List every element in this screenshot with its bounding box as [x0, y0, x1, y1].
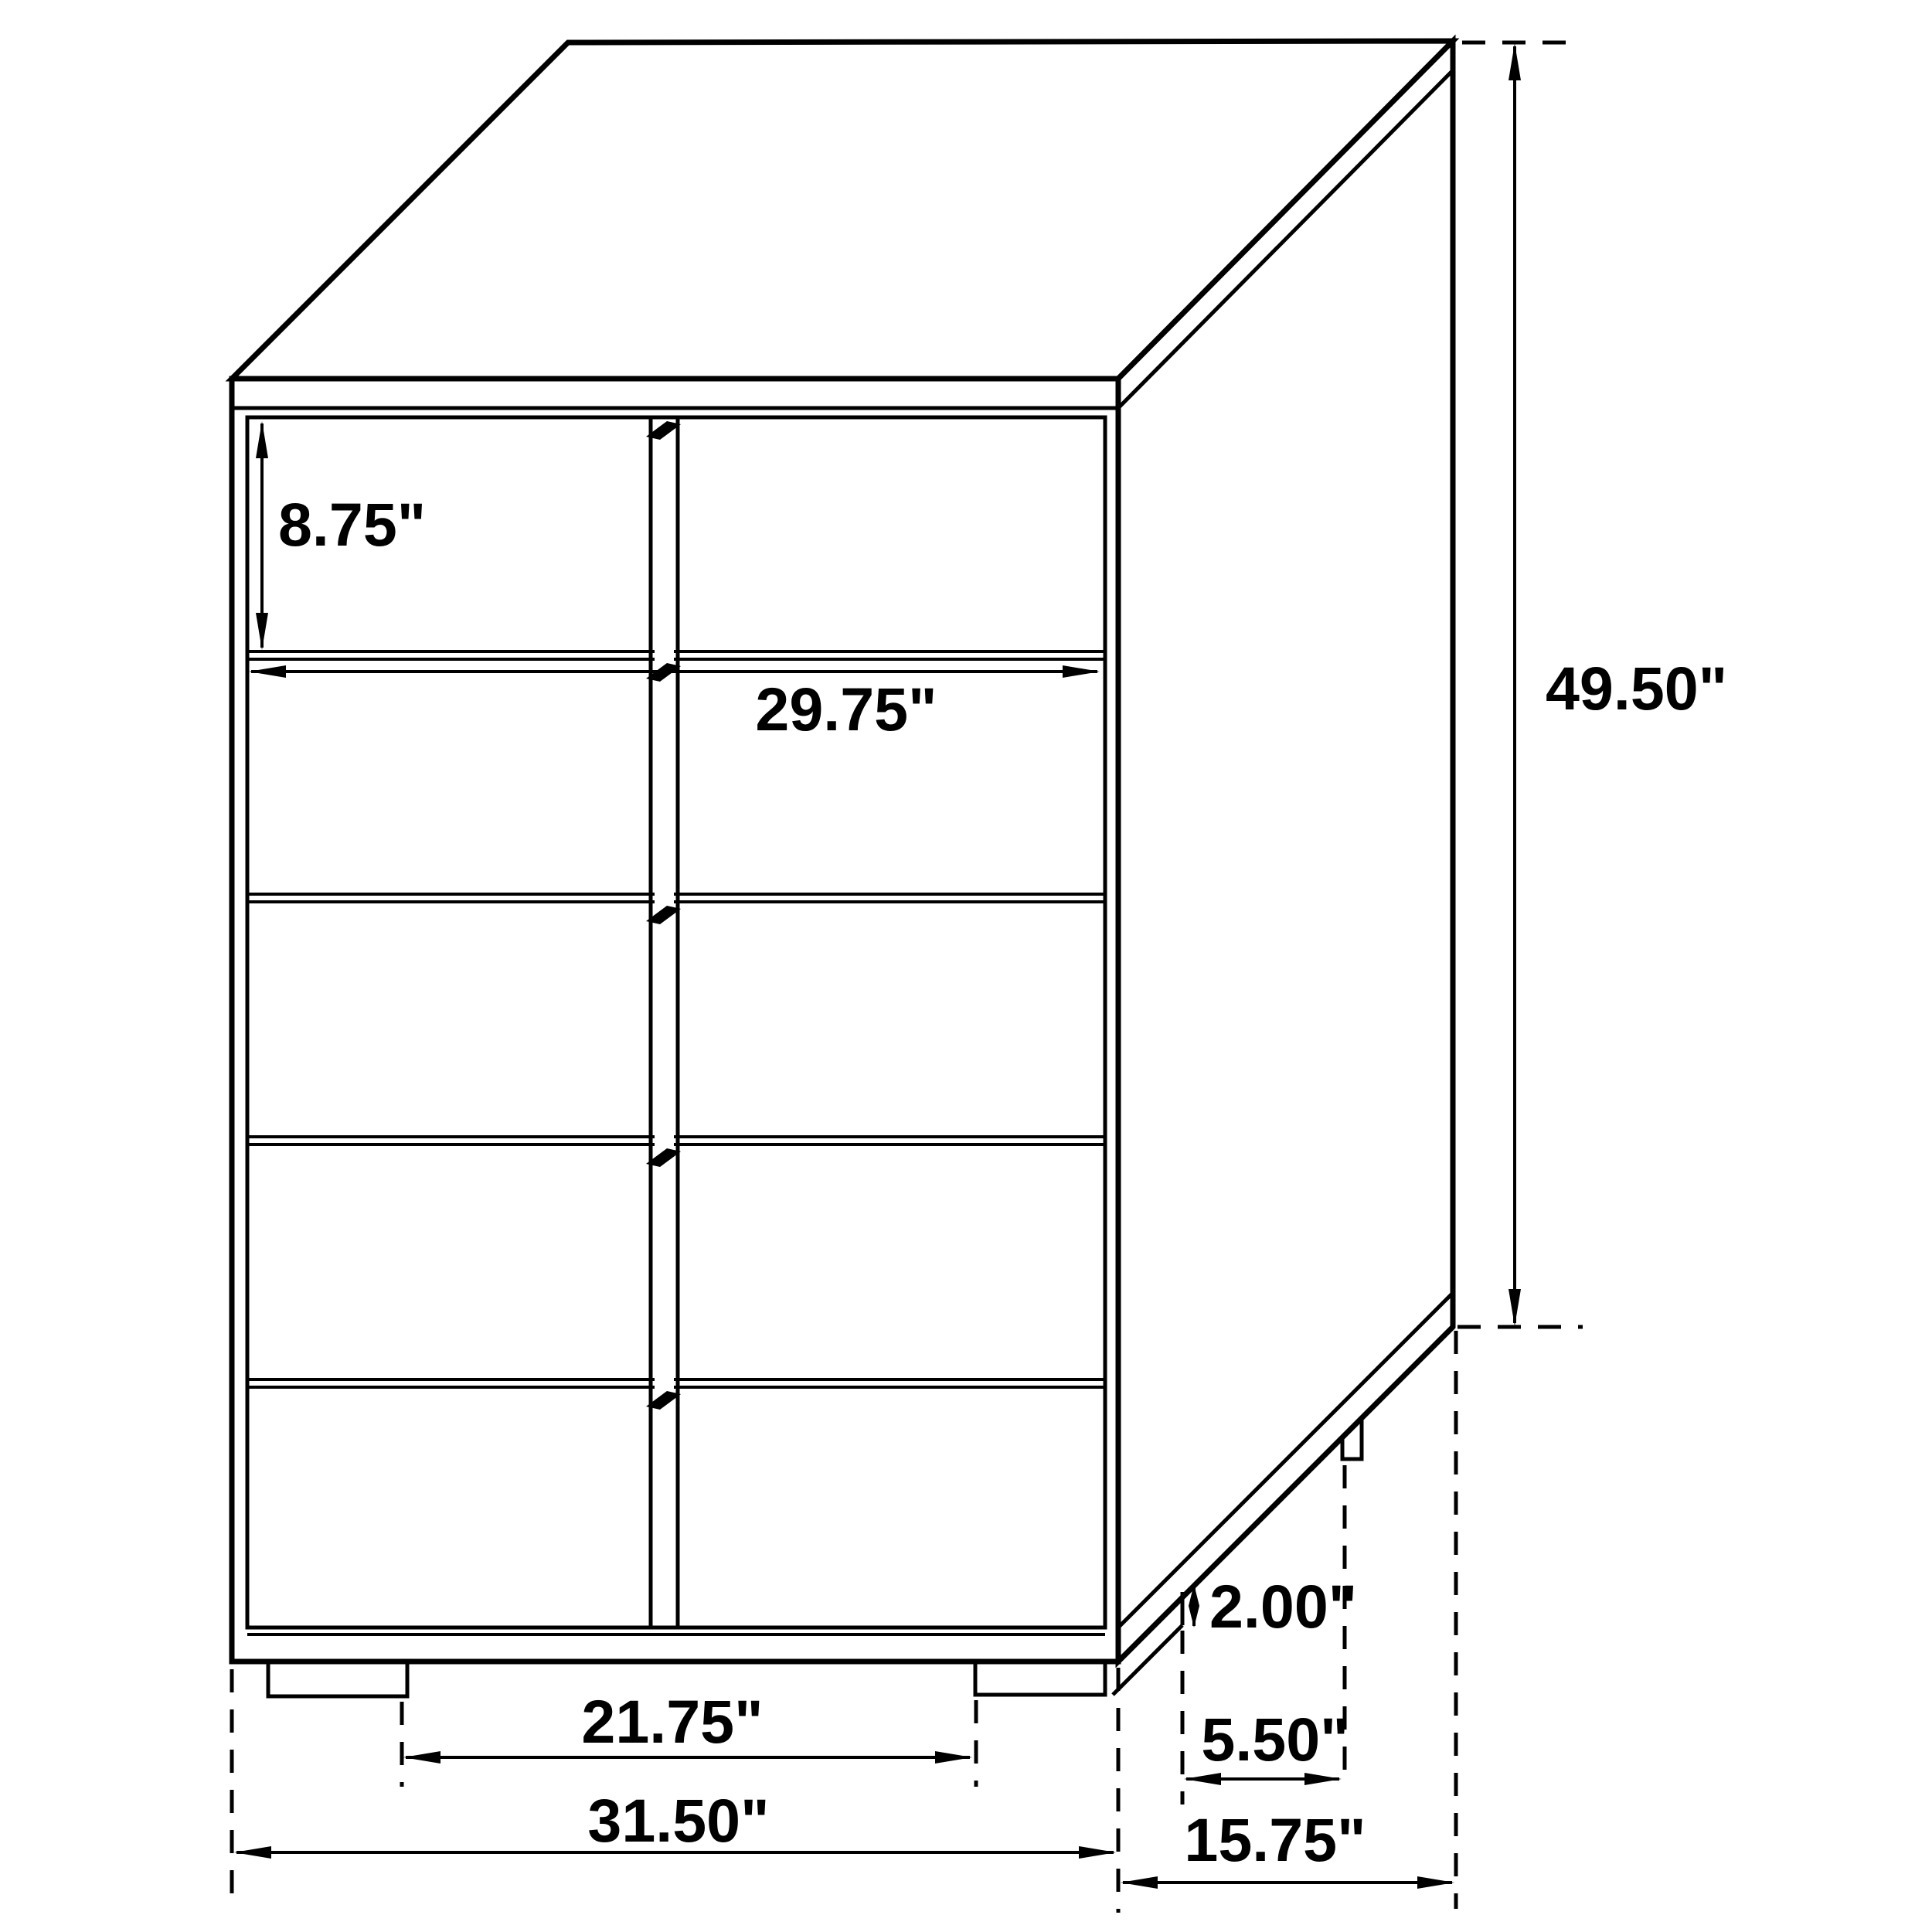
label-side-leg-spacing: 5.50" — [1201, 1705, 1349, 1774]
divider-gap — [655, 420, 674, 1625]
dimension-overall-height — [1509, 43, 1521, 1326]
front-right-leg — [975, 1662, 1105, 1695]
label-drawer-width: 29.75" — [755, 675, 937, 743]
dimension-overall-depth — [1121, 1876, 1454, 1889]
label-drawer-height: 8.75" — [278, 490, 426, 559]
center-divider — [651, 417, 678, 1628]
label-overall-height: 49.50" — [1546, 654, 1727, 723]
chest-outline — [232, 41, 1453, 1662]
front-left-leg — [268, 1662, 407, 1696]
label-front-leg-spacing: 21.75" — [581, 1687, 763, 1756]
front-face — [232, 379, 1118, 1662]
dimension-side-leg-spacing — [1184, 1773, 1342, 1785]
chest-dimension-drawing: 8.75" 29.75" 49.50" 2.00" 5.50" 21.75" 3… — [0, 0, 1932, 1932]
label-overall-width: 31.50" — [587, 1786, 769, 1855]
dimension-drawing-page: 8.75" 29.75" 49.50" 2.00" 5.50" 21.75" 3… — [0, 0, 1932, 1932]
label-leg-height: 2.00" — [1209, 1572, 1357, 1641]
label-overall-depth: 15.75" — [1184, 1805, 1366, 1874]
